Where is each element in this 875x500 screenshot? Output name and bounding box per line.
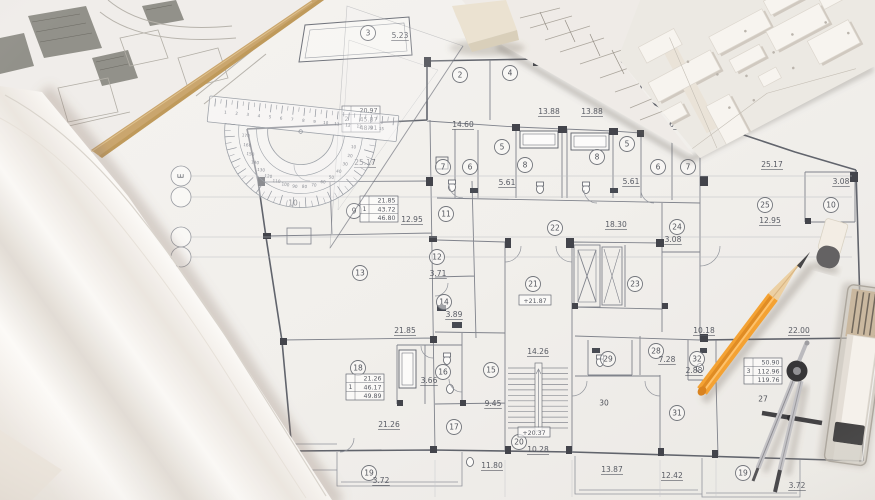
scene-svg: E324576885671091125102412132221231418161… xyxy=(0,0,875,500)
vignette xyxy=(0,0,875,500)
photo-scene: E324576885671091125102412132221231418161… xyxy=(0,0,875,500)
